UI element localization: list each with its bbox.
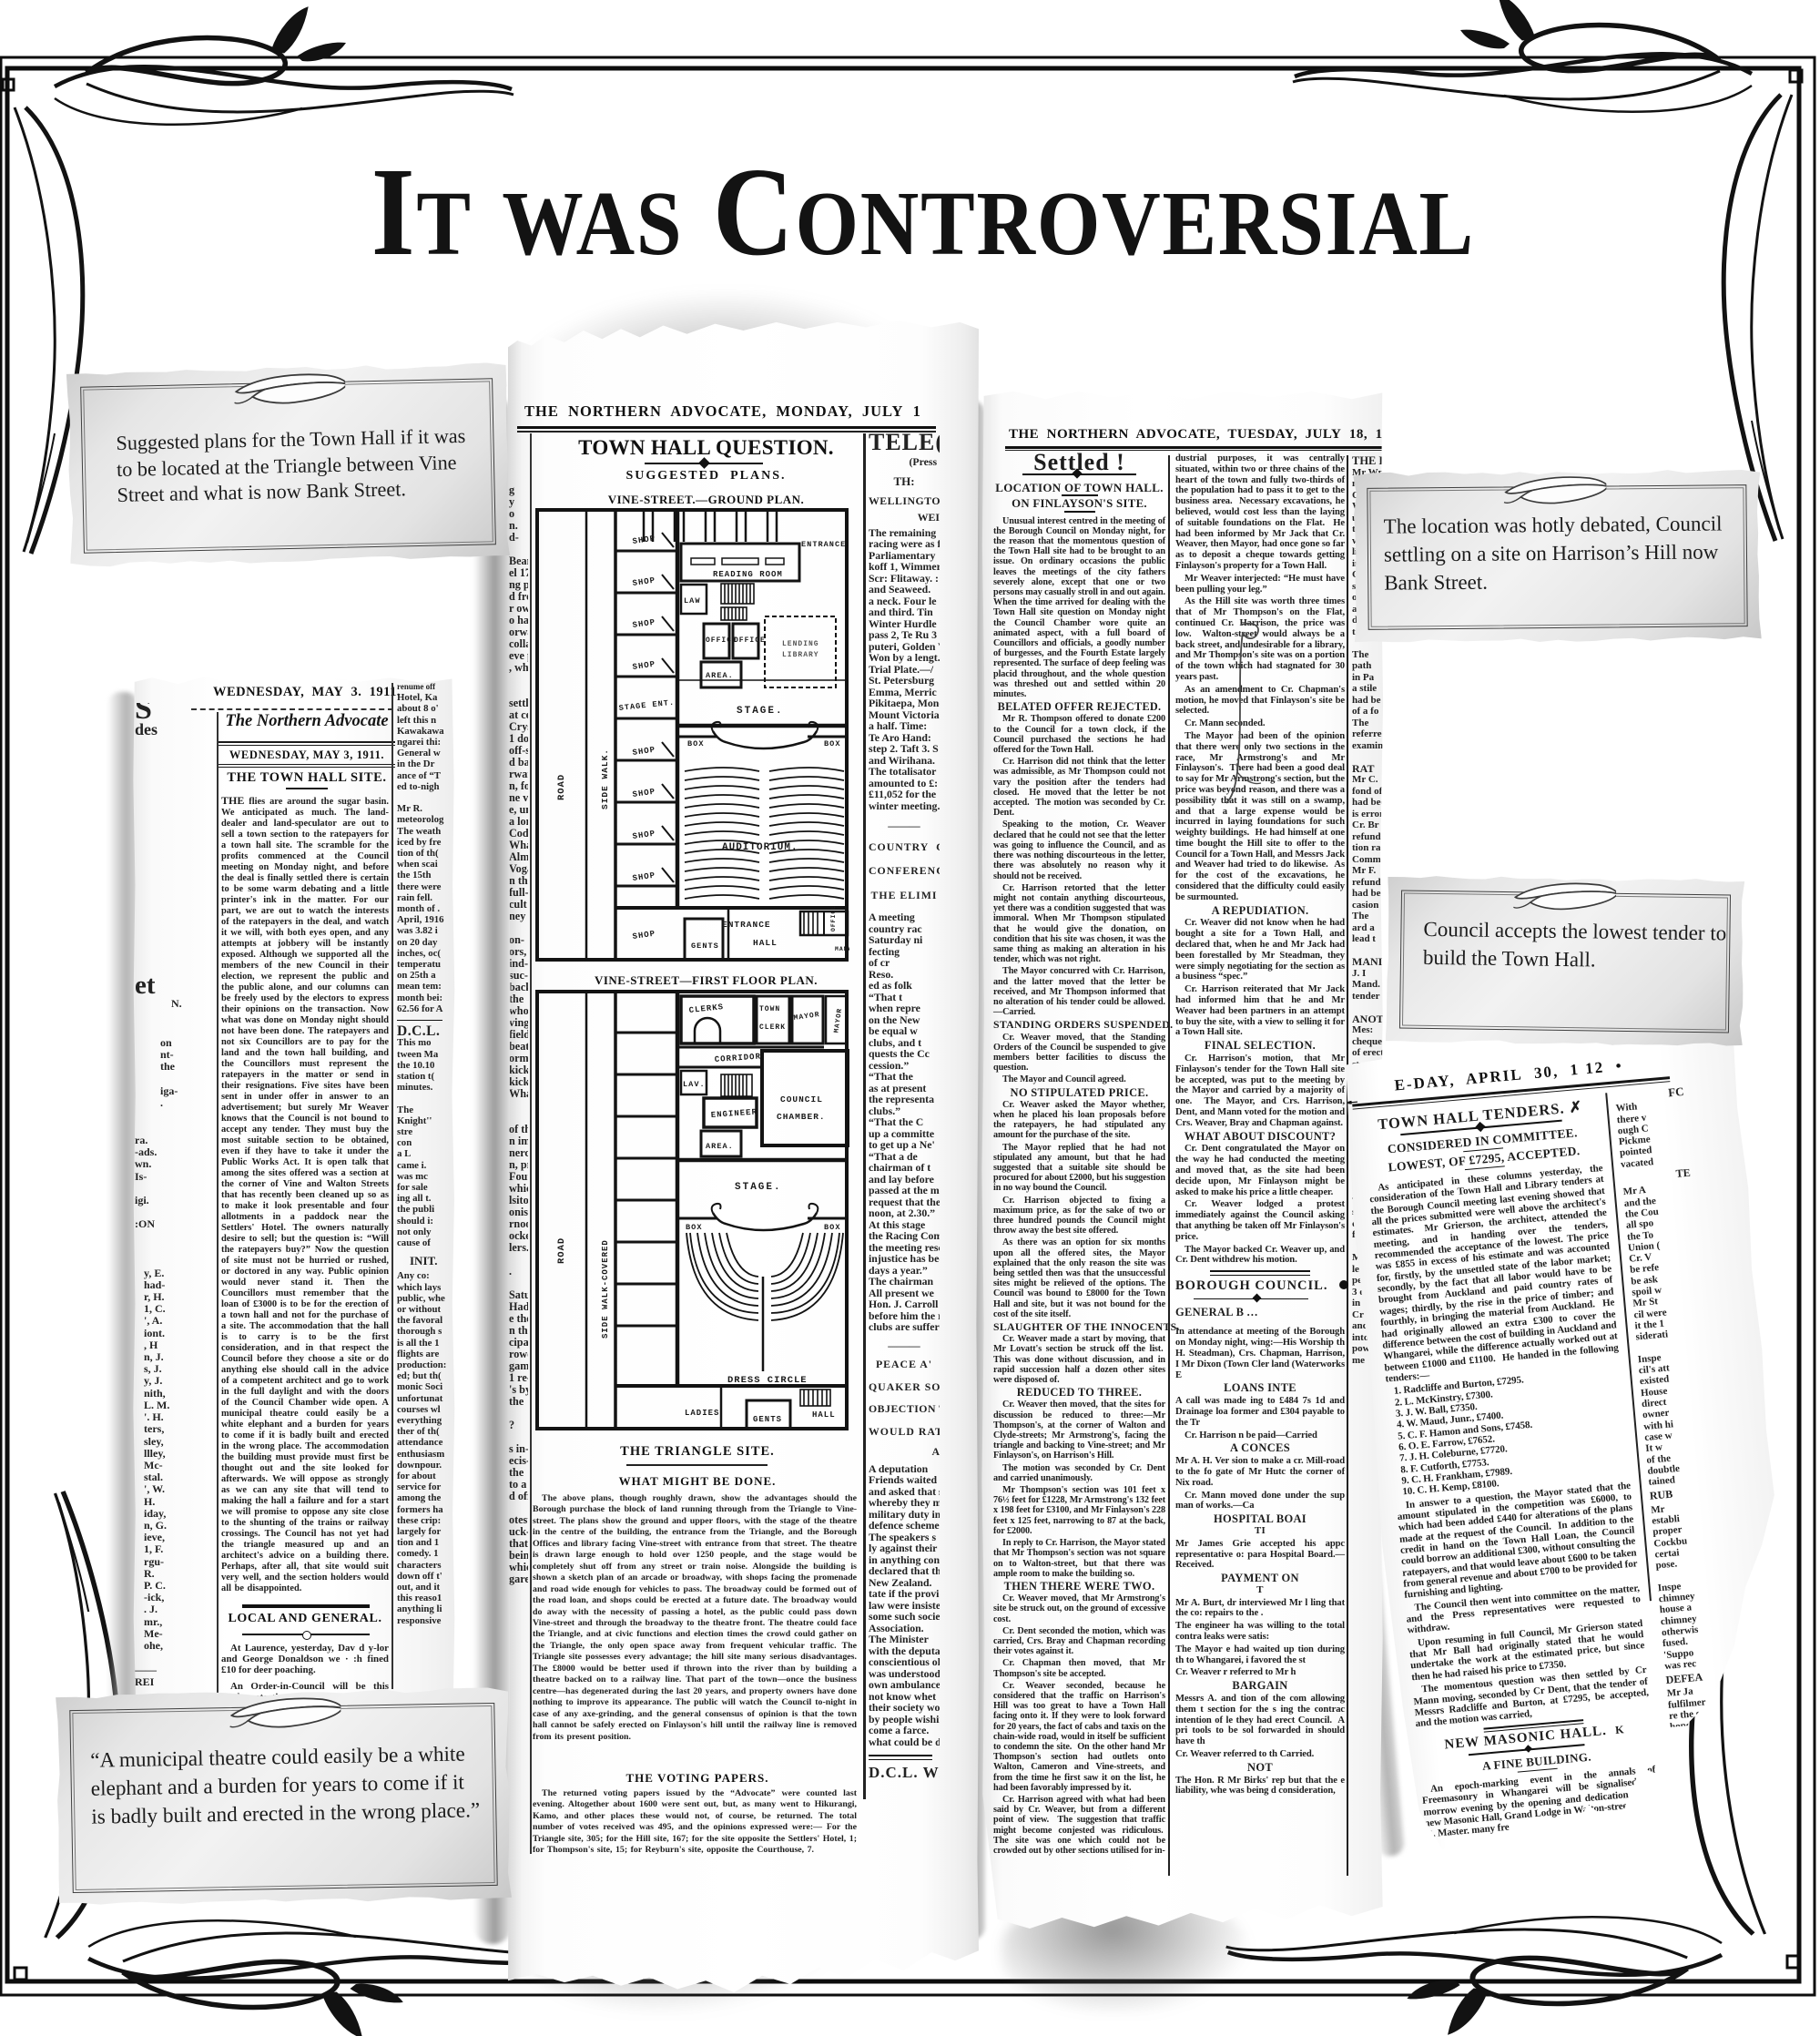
svg-text:SHOP: SHOP [632, 576, 656, 588]
svg-text:SHOP: SHOP [632, 618, 656, 630]
svg-text:SHOP: SHOP [632, 830, 656, 841]
svg-text:SIDE WALK.: SIDE WALK. [600, 748, 610, 809]
svg-text:BOX: BOX [824, 1223, 840, 1232]
svg-text:MANAGER: MANAGER [835, 946, 849, 952]
svg-text:COUNCIL: COUNCIL [780, 1094, 823, 1105]
svg-text:READING ROOM: READING ROOM [713, 570, 783, 579]
svg-text:SIDE WALK-COVERED: SIDE WALK-COVERED [601, 1239, 610, 1339]
svg-text:SHOP: SHOP [632, 871, 656, 883]
svg-text:CHAMBER.: CHAMBER. [777, 1112, 826, 1122]
svg-text:SHOP: SHOP [632, 788, 656, 799]
svg-text:SHOP: SHOP [632, 660, 656, 672]
svg-text:ENGINEER: ENGINEER [711, 1107, 758, 1120]
svg-text:ROAD: ROAD [556, 774, 567, 800]
svg-text:MAYOR: MAYOR [833, 1008, 844, 1033]
svg-text:OFFICE: OFFICE [706, 636, 737, 645]
svg-text:ENTRANCE: ENTRANCE [801, 540, 846, 549]
svg-text:STAGE ENT.: STAGE ENT. [618, 698, 675, 713]
svg-text:STAGE.: STAGE. [735, 1182, 782, 1193]
svg-text:LAW: LAW [684, 596, 700, 606]
svg-text:OFFICE: OFFICE [830, 905, 837, 931]
svg-text:LIBRARY: LIBRARY [782, 651, 819, 659]
svg-text:TOWN: TOWN [759, 1005, 780, 1013]
svg-text:BOX: BOX [824, 739, 840, 748]
svg-text:LADIES: LADIES [685, 1409, 719, 1418]
svg-text:DRESS CIRCLE: DRESS CIRCLE [727, 1375, 808, 1386]
svg-text:AREA.: AREA. [706, 671, 734, 680]
svg-text:SHOP: SHOP [632, 534, 656, 546]
svg-text:SHOP: SHOP [632, 930, 656, 942]
svg-text:GENTS: GENTS [691, 942, 719, 951]
svg-text:AUDITORIUM.: AUDITORIUM. [722, 842, 798, 853]
svg-text:OFFICE: OFFICE [734, 636, 766, 645]
svg-text:SHOP: SHOP [632, 746, 656, 758]
svg-text:GENTS: GENTS [753, 1415, 782, 1424]
svg-text:ROAD: ROAD [556, 1237, 567, 1264]
svg-text:HALL: HALL [812, 1410, 836, 1420]
svg-text:MAYOR: MAYOR [793, 1011, 820, 1023]
svg-text:LENDING: LENDING [782, 640, 819, 648]
svg-text:LAV.: LAV. [683, 1080, 706, 1089]
svg-text:CLERK: CLERK [759, 1023, 786, 1032]
svg-text:BOX: BOX [686, 1223, 702, 1232]
svg-text:CLERKS: CLERKS [688, 1003, 724, 1015]
svg-text:CORRIDOR: CORRIDOR [715, 1052, 762, 1064]
svg-text:AREA.: AREA. [706, 1142, 734, 1151]
svg-text:BOX: BOX [687, 739, 704, 748]
svg-text:STAGE.: STAGE. [737, 706, 784, 717]
svg-text:HALL: HALL [753, 938, 778, 948]
svg-text:ENTRANCE: ENTRANCE [722, 920, 771, 930]
